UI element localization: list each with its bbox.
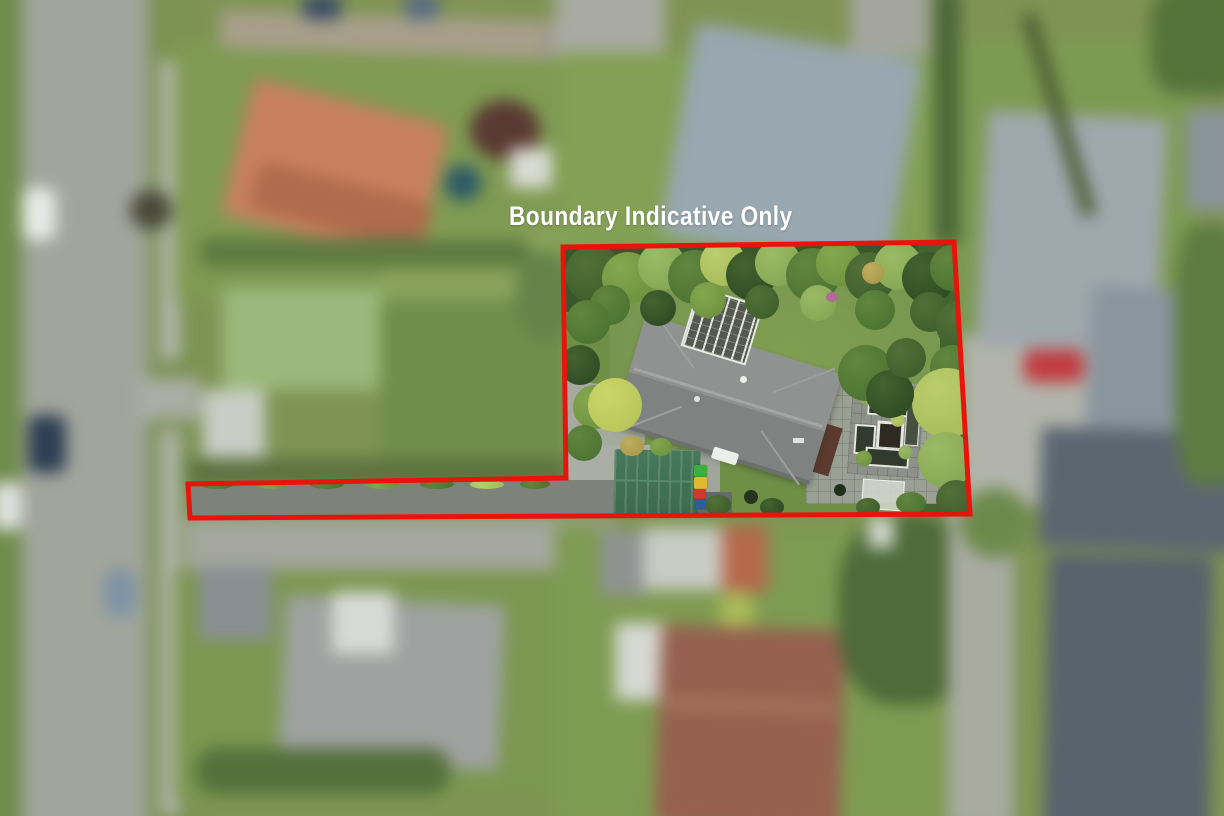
neighbour-roof — [643, 528, 728, 590]
neighbour-roof — [722, 526, 768, 592]
parked-car — [22, 188, 56, 240]
garage-roof — [332, 592, 394, 654]
pool — [444, 165, 482, 201]
tree — [745, 285, 779, 319]
parked-car — [1024, 350, 1084, 382]
wheelie-bin-green — [694, 465, 707, 477]
tree — [566, 425, 602, 461]
tree — [862, 262, 884, 284]
bush — [896, 492, 926, 514]
hedge — [200, 238, 530, 268]
neighbour-roof — [1044, 555, 1214, 816]
tree — [800, 285, 836, 321]
tree — [130, 190, 172, 230]
wheelie-bin-red — [694, 489, 706, 499]
parked-car — [28, 415, 66, 473]
tree — [886, 338, 926, 378]
asphalt-access-strip — [184, 480, 654, 520]
boundary-disclaimer-text: Boundary Indicative Only — [509, 201, 793, 232]
tree — [960, 488, 1030, 558]
neighbour-roof — [1186, 110, 1224, 210]
neighbour-roof — [1084, 286, 1188, 451]
tree — [560, 345, 600, 385]
weeds — [365, 480, 399, 489]
neighbour-roof — [600, 530, 646, 596]
neighbour-roof — [659, 22, 923, 274]
aerial-photo: Boundary Indicative Only — [0, 0, 1224, 816]
bush — [760, 498, 784, 516]
tree — [588, 378, 642, 432]
roof-vent — [740, 376, 747, 383]
parked-car — [405, 0, 439, 20]
weeds — [520, 479, 550, 489]
bush — [898, 445, 913, 460]
hedge — [196, 748, 450, 794]
driveway — [555, 0, 665, 60]
roof-ridge — [633, 367, 822, 427]
tree — [918, 432, 974, 488]
roof-hip-line — [773, 368, 835, 394]
planter-pot — [834, 484, 846, 496]
planter-pot — [744, 490, 758, 504]
shed-roof-ribs — [613, 449, 700, 516]
bush — [856, 498, 880, 516]
tree — [566, 300, 610, 344]
parked-car — [0, 482, 22, 530]
weeds — [470, 480, 504, 489]
garden-shed — [510, 148, 552, 188]
parked-car — [303, 0, 341, 20]
roof-vent — [793, 438, 804, 443]
tree — [855, 290, 895, 330]
driveway-crossing — [138, 378, 200, 420]
grass-verge — [0, 0, 22, 816]
bush — [705, 495, 731, 515]
bush — [650, 438, 672, 456]
garden-shed-roof — [613, 449, 700, 516]
trees — [1150, 0, 1224, 95]
bush — [620, 436, 644, 456]
garden-shed — [203, 390, 265, 464]
trees — [1175, 225, 1224, 485]
garden-shed — [198, 566, 272, 640]
weeds — [420, 479, 454, 489]
tree — [640, 290, 676, 326]
parked-car — [104, 570, 136, 616]
tennis-court — [222, 288, 384, 390]
tree — [718, 590, 755, 632]
greenhouse — [868, 518, 894, 548]
neighbour-roof — [655, 625, 846, 816]
driveway — [850, 0, 930, 55]
hedge — [934, 0, 960, 245]
flowering-shrub — [826, 292, 838, 302]
roof-vent — [694, 396, 700, 402]
tree — [690, 282, 726, 318]
wheelie-bin-yellow — [694, 477, 707, 489]
